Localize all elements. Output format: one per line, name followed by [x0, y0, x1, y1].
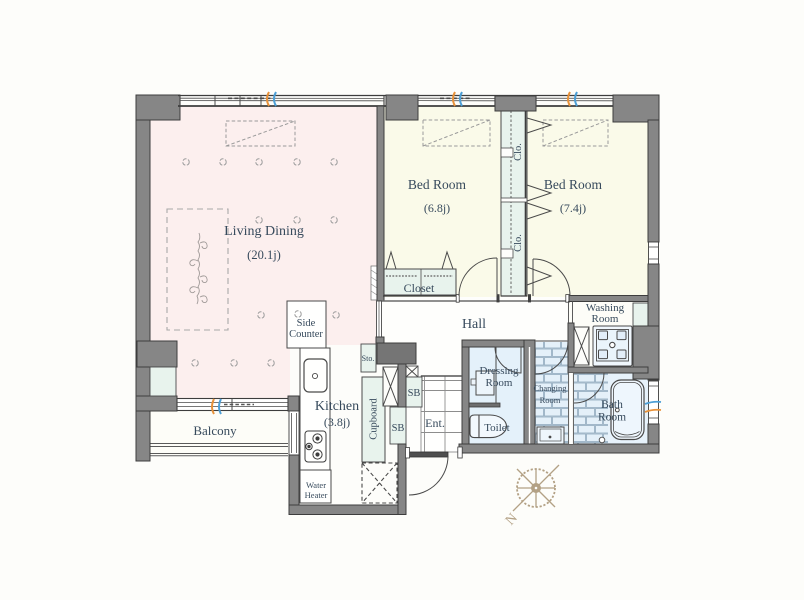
svg-text:Clo.: Clo.	[513, 234, 524, 252]
svg-text:Room: Room	[540, 395, 561, 405]
svg-text:(6.8j): (6.8j)	[424, 201, 450, 215]
svg-text:Ent.: Ent.	[425, 416, 445, 430]
svg-text:Kitchen: Kitchen	[315, 399, 359, 414]
svg-text:Side: Side	[297, 318, 316, 329]
svg-text:Room: Room	[592, 313, 619, 325]
svg-text:Changing: Changing	[533, 383, 567, 393]
svg-text:Balcony: Balcony	[193, 423, 237, 438]
svg-text:Bed Room: Bed Room	[544, 177, 603, 192]
svg-text:Bath: Bath	[601, 399, 623, 411]
svg-text:Water: Water	[306, 480, 326, 490]
svg-text:Clo.: Clo.	[513, 143, 524, 161]
svg-text:Room: Room	[598, 412, 626, 424]
svg-text:(20.1j): (20.1j)	[247, 248, 281, 262]
svg-text:Counter: Counter	[289, 329, 323, 340]
svg-text:Closet: Closet	[404, 281, 435, 295]
svg-text:(3.8j): (3.8j)	[324, 415, 350, 429]
svg-text:SB: SB	[408, 388, 421, 399]
svg-text:Hall: Hall	[462, 317, 486, 332]
svg-text:SB: SB	[392, 423, 405, 434]
svg-text:Living Dining: Living Dining	[224, 224, 304, 239]
svg-text:Cupboard: Cupboard	[369, 398, 380, 440]
svg-text:Room: Room	[486, 377, 513, 389]
svg-text:Toilet: Toilet	[484, 422, 510, 434]
svg-text:(7.4j): (7.4j)	[560, 201, 586, 215]
svg-text:Heater: Heater	[305, 490, 328, 500]
svg-text:Sto.: Sto.	[362, 354, 375, 363]
svg-text:Bed Room: Bed Room	[408, 177, 467, 192]
svg-text:Dressing: Dressing	[479, 365, 519, 377]
